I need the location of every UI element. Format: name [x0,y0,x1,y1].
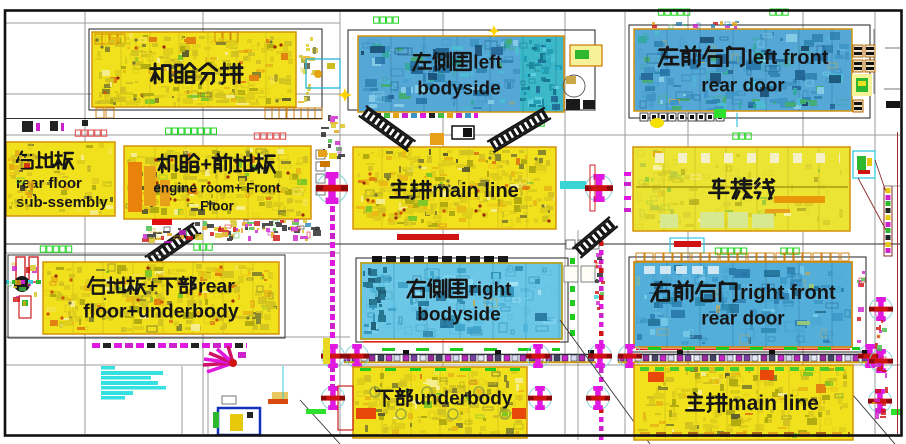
svg-text:right: right [469,280,512,301]
svg-text:left: left [473,53,502,74]
svg-text:underbody: underbody [414,389,513,410]
svg-text:right front: right front [740,282,836,304]
svg-text:rear: rear [198,276,235,298]
svg-text:Floor: Floor [200,199,234,214]
svg-text:rear door: rear door [701,76,785,97]
svg-text:rear door: rear door [701,309,785,330]
svg-text:+: + [147,276,158,298]
svg-text:left front: left front [747,47,828,69]
svg-text:engine room+ Front: engine room+ Front [153,181,281,196]
svg-text:bodyside: bodyside [417,79,500,100]
svg-text:main line: main line [728,392,819,415]
svg-text:bodyside: bodyside [417,305,500,326]
svg-text:main line: main line [432,180,519,202]
svg-text:+: + [200,154,212,176]
svg-text:floor+underbody: floor+underbody [83,301,239,323]
